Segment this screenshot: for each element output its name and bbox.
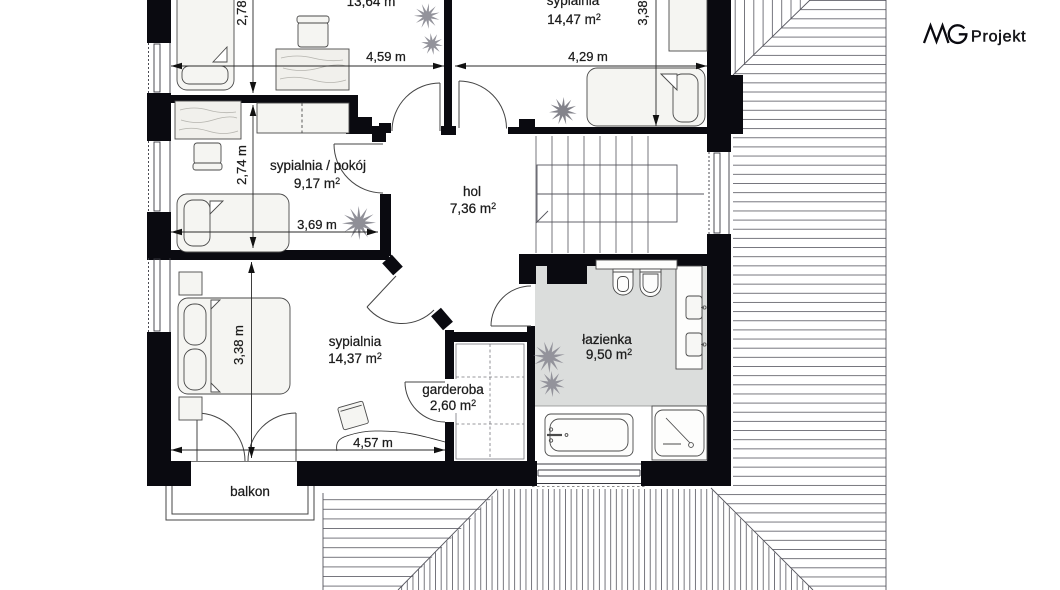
- svg-text:13,64 m: 13,64 m: [347, 0, 396, 9]
- svg-text:9,50 m2: 9,50 m2: [586, 347, 632, 362]
- svg-text:hol: hol: [463, 184, 481, 199]
- svg-text:2,60 m2: 2,60 m2: [430, 398, 476, 413]
- svg-text:7,36 m2: 7,36 m2: [450, 201, 496, 216]
- svg-text:4,29 m: 4,29 m: [568, 49, 608, 64]
- svg-text:14,37 m2: 14,37 m2: [328, 351, 382, 366]
- svg-text:2,74 m: 2,74 m: [234, 145, 249, 185]
- svg-text:sypialnia / pokój: sypialnia / pokój: [270, 158, 366, 173]
- svg-text:4,57 m: 4,57 m: [353, 435, 393, 450]
- svg-text:9,17 m2: 9,17 m2: [294, 176, 340, 191]
- svg-text:garderoba: garderoba: [422, 382, 484, 397]
- svg-text:łazienka: łazienka: [582, 332, 632, 347]
- svg-text:3,38: 3,38: [635, 0, 650, 25]
- svg-text:14,47 m2: 14,47 m2: [547, 12, 601, 27]
- svg-text:3,69 m: 3,69 m: [297, 217, 337, 232]
- svg-text:Projekt: Projekt: [971, 29, 1026, 46]
- svg-text:2,78: 2,78: [234, 0, 249, 25]
- svg-text:balkon: balkon: [230, 484, 270, 499]
- svg-text:sypialnia: sypialnia: [329, 334, 382, 349]
- svg-text:4,59 m: 4,59 m: [366, 49, 406, 64]
- svg-text:sypialnia: sypialnia: [547, 0, 600, 8]
- svg-text:3,38 m: 3,38 m: [231, 325, 246, 365]
